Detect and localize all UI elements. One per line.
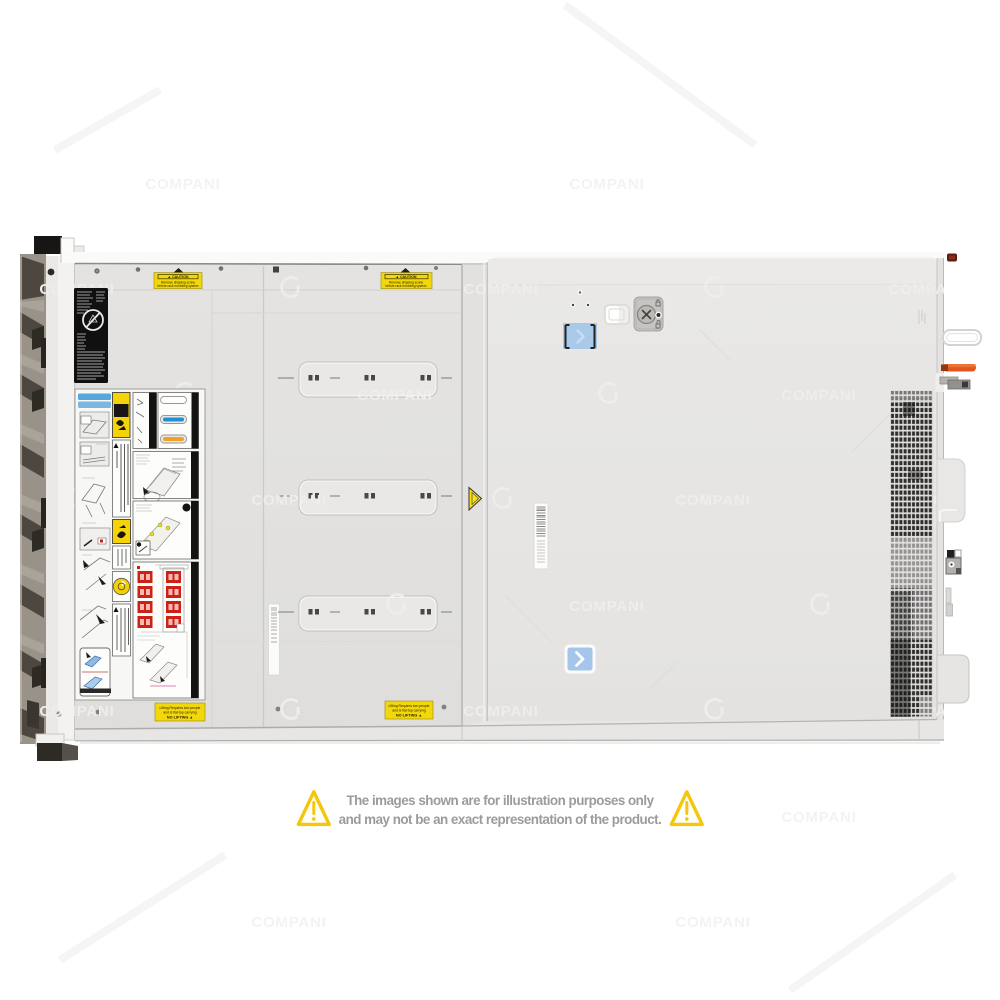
svg-text:COMPANI: COMPANI (463, 281, 538, 298)
svg-text:▲ CAUTION: ▲ CAUTION (168, 275, 189, 279)
svg-text:COMPANI: COMPANI (251, 492, 326, 509)
svg-text:NO LIFTING ▲: NO LIFTING ▲ (167, 716, 193, 720)
svg-text:COMPANI: COMPANI (569, 176, 644, 193)
svg-text:COMPANI: COMPANI (251, 70, 326, 87)
svg-text:COMPANI: COMPANI (888, 281, 963, 298)
svg-text:COMPANI: COMPANI (781, 809, 856, 826)
svg-text:The images shown are for illus: The images shown are for illustration pu… (346, 793, 654, 808)
svg-text:COMPANI: COMPANI (675, 492, 750, 509)
svg-text:and is flat-top carrying: and is flat-top carrying (392, 709, 425, 713)
svg-text:COMPANI: COMPANI (39, 703, 114, 720)
svg-text:before rack mounting system: before rack mounting system (386, 284, 427, 288)
svg-text:before rack mounting system: before rack mounting system (158, 284, 199, 288)
svg-text:COMPANI: COMPANI (675, 914, 750, 931)
svg-text:COMPANI: COMPANI (145, 176, 220, 193)
svg-text:COMPANI: COMPANI (357, 387, 432, 404)
svg-text:Lifting Requires two people: Lifting Requires two people (160, 706, 201, 710)
svg-text:COMPANI: COMPANI (675, 70, 750, 87)
svg-text:COMPANI: COMPANI (569, 598, 644, 615)
svg-text:Lifting Requires two people: Lifting Requires two people (389, 704, 430, 708)
svg-text:and is flat-top carrying: and is flat-top carrying (163, 711, 196, 715)
svg-text:COMPANI: COMPANI (251, 914, 326, 931)
svg-text:and may not be an exact repres: and may not be an exact representation o… (339, 812, 662, 827)
svg-text:▲ CAUTION: ▲ CAUTION (396, 275, 417, 279)
svg-text:COMPANI: COMPANI (781, 387, 856, 404)
svg-text:NO LIFTING ▲: NO LIFTING ▲ (396, 714, 422, 718)
svg-text:COMPANI: COMPANI (463, 703, 538, 720)
